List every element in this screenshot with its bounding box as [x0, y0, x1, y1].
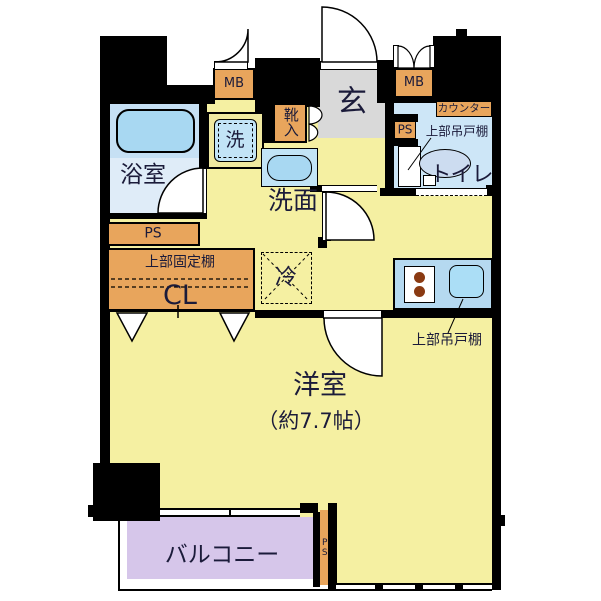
- toilet-hanging-shelf-label: 上部吊戸棚: [426, 124, 489, 137]
- kitchen-shelf-leader: [448, 299, 463, 333]
- washroom-door-swing: [326, 192, 374, 240]
- entrance-label: 玄: [337, 86, 367, 118]
- genkan-bifold-top: [309, 106, 322, 124]
- ps1-label: PS: [144, 227, 161, 242]
- floor-plan: 浴室 洗 MB 靴入 玄 MB カウンター PS 上部吊戸棚 トイレ 洗面 PS…: [0, 0, 601, 601]
- mb2-bifold-left: [398, 46, 414, 68]
- entrance-door-swing: [322, 7, 377, 62]
- mainroom-door-swing: [324, 318, 382, 376]
- balcony-label: バルコニー: [165, 543, 280, 567]
- mb1-door-swing: [215, 29, 248, 62]
- plan-overlay: [0, 0, 601, 601]
- genkan-bifold-bottom: [309, 124, 318, 141]
- mb1-label: MB: [224, 77, 244, 91]
- upper-fixed-shelf-label: 上部固定棚: [145, 256, 215, 271]
- main-room-label: 洋室: [293, 372, 347, 400]
- washing-machine-label: 洗: [225, 131, 244, 151]
- balcony-ps-label: PS: [319, 538, 328, 558]
- toilet-shelf-leader: [408, 138, 431, 170]
- washroom-label: 洗面: [268, 188, 318, 214]
- closet-folding-door-1: [117, 313, 147, 341]
- mb2-label: MB: [404, 76, 424, 90]
- closet-folding-door-2: [220, 313, 249, 341]
- ps2-label: PS: [398, 124, 413, 137]
- closet-label: CL: [163, 282, 197, 310]
- main-room-size-label: （約7.7帖）: [257, 410, 374, 432]
- toilet-label: トイレ: [429, 163, 492, 186]
- kitchen-hanging-shelf-label: 上部吊戸棚: [412, 334, 482, 349]
- bathroom-label: 浴室: [120, 163, 166, 187]
- refrigerator-label: 冷: [275, 266, 297, 289]
- mb2-bifold-right: [414, 46, 430, 68]
- shoe-cabinet-label: 靴入: [282, 107, 298, 137]
- counter-label: カウンター: [438, 103, 491, 114]
